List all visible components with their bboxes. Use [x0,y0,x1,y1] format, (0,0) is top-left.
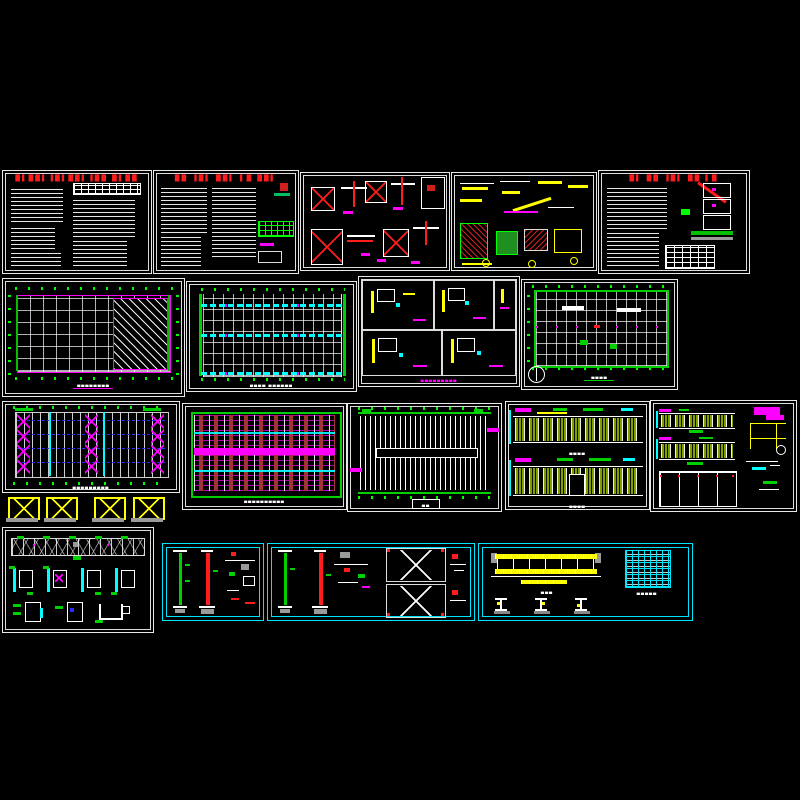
joint-dot-red [441,613,444,616]
caption-underline [73,388,113,389]
section-yellow [577,604,580,607]
detail-green-label [689,430,703,433]
column-figure-red [312,550,330,614]
vertical-brace-detail[interactable] [133,497,165,520]
brace-base [131,518,163,522]
section-yellow [497,602,500,605]
sheet-caption: ▄▄ [413,502,439,507]
x-bracing-magenta [17,414,30,474]
grid-ticks-top [201,288,345,291]
sheet-elevations[interactable]: ▄▄▄▄ ▄▄▄▄ [505,401,650,510]
node-detail [55,600,85,626]
section-yellow [542,602,545,605]
sheet-roof-plan[interactable]: ▄▄▄▄ [521,279,678,390]
detail-green-bar [15,408,33,411]
detail-green-tag [185,580,190,582]
plan-edge-green [168,295,170,371]
detail-yellow-bar [451,339,454,363]
detail-line [347,235,375,237]
crane-beam-bottom-flange [495,569,597,574]
sheet-general-notes-2[interactable]: ██ ▐█▌ ██▌ ▌█ ██▌ [153,170,299,274]
detail-line [746,461,778,462]
detail-box [421,177,445,209]
detail-panel [362,280,434,330]
detail-cyan-bar [47,568,50,592]
column-footing-gray [201,609,214,614]
detail-green-bar [691,231,733,235]
detail-green-label [27,592,33,595]
side-glyphs [450,588,470,612]
detail-red-line [353,181,355,207]
joint-dot-red [660,475,662,477]
detail-green-block [362,409,371,413]
detail-box [258,251,282,263]
frame-elevation [659,471,737,507]
detail-green-tag [185,564,190,566]
detail-line [450,600,466,601]
sheet-title: █▌ ██ ▐█▌ ██ ▌█ [599,175,749,182]
detail-magenta-bar [515,458,531,462]
grid-ticks-bottom [201,378,345,381]
detail-magenta-bar [515,408,531,412]
brace-base [92,518,124,522]
grid-ticks-bottom [15,377,173,380]
grid-line-cyan [509,410,511,444]
eave-line-green [358,412,491,414]
cad-canvas: █▌██▌▐█▌██▌▐██ █▌██ ██ ▐█▌ ██▌ ▌█ ██▌ [0,0,800,800]
sheet-caption: ▄▄▄▄▄▄▄▄ [3,382,184,387]
elevation-top-line [513,416,643,417]
detail-box [19,570,33,588]
detail-red-block [452,590,458,595]
hatched-area [113,298,168,370]
detail-red-line [401,177,403,205]
notes-text-block [73,197,135,237]
detail-cyan-bar [115,568,118,592]
eave-line-green [358,492,491,494]
brace-x [10,499,38,518]
diagram-panel [703,215,731,230]
column-cap [201,550,213,552]
sheet-connection-details[interactable] [451,172,597,271]
detail-yellow-line [750,423,786,424]
diagram-panel [703,183,731,198]
detail-green-arrow [55,606,63,609]
sheet-column-base-details[interactable]: ▄▄▄▄▄▄▄▄▄ [358,276,520,387]
detail-red-dash [231,598,239,600]
detail-red-block [427,185,435,191]
sheet-roof-bracing-plan[interactable]: ▄▄▄▄▄▄▄▄▄ [2,401,180,493]
callout-bubble [570,257,578,265]
section-web [500,600,502,609]
sheet-notes-with-diagram[interactable]: █▌ ██ ▐█▌ ██ ▌█ [598,170,750,274]
section-base-gray [574,611,590,614]
detail-red-line [347,240,373,242]
detail-green-bar [583,408,603,411]
detail-panel [494,280,516,330]
detail-cyan-bar [621,408,633,411]
detail-magenta-blob [766,415,784,420]
detail-magenta-cross [55,574,63,582]
joint-dot-red [716,475,718,477]
brace-x [135,499,163,518]
detail-box [243,576,255,586]
grid-ticks-right [176,293,179,375]
detail-gray-block [340,552,350,558]
detail-green-label [95,592,101,595]
detail-panel [442,330,516,376]
grid-line-cyan [509,460,511,496]
joint-dot-red [441,549,444,552]
truss-node-green [95,536,102,539]
brace-base [44,518,76,522]
section-base-gray [534,611,550,614]
eave-detail-figure [746,459,786,473]
detail-green-arrow [13,612,21,615]
roof-grid [534,290,669,368]
sheet-column-schedule-2[interactable] [267,543,475,621]
joint-dot-red [732,475,734,477]
detail-blue-block [70,608,74,612]
detail-box [122,606,130,614]
brace-x [48,499,76,518]
column-footing-gray [280,609,290,613]
sheet-general-notes-1[interactable]: █▌██▌▐█▌██▌▐██ █▌██ [2,170,152,274]
panel-x-white [388,586,444,616]
gable-elevation-1 [659,409,735,429]
detail-green-block [229,572,235,576]
grid-line-cyan [656,439,658,459]
detail-magenta-dash [362,586,370,588]
mid-details [334,556,380,600]
detail-green-label [43,566,49,569]
brace-x [96,499,124,518]
detail-magenta-dash [413,365,427,367]
strut-line-cyan [103,412,105,476]
elevation-caption-bottom: ▄▄▄▄ [506,503,649,508]
detail-red-block [231,552,236,556]
vertical-brace-detail[interactable] [8,497,40,520]
column-footing-gray [175,609,185,613]
sheet-title: █▌██▌▐█▌██▌▐██ █▌██ [3,175,151,182]
diagram-panel [703,199,731,214]
detail-magenta-dash [413,319,426,321]
elevation-base-line [513,495,643,496]
elevation-base-line [513,442,643,443]
footing-plan-detail [383,229,409,257]
sheet-crane-beam-details[interactable]: ▄▄▄ ▄▄▄▄▄ [478,543,693,621]
detail-cyan-block [465,301,469,305]
sheet-caption: ▄▄▄▄▄▄▄▄▄ [359,377,519,382]
column-shaft-green [179,553,182,605]
section-base-gray [494,611,510,614]
notes-table [73,183,141,195]
detail-yellow-bar [460,199,482,202]
detail-magenta-blob [754,407,780,415]
tie-beam-line [201,334,345,337]
ridge-beam [376,448,478,458]
sheet-roof-sheeting-plan[interactable]: ▄▄ [347,403,502,512]
detail-line [450,564,466,565]
detail-red-dash [245,602,255,604]
notes-text-block [161,236,201,266]
elevation-base-line [659,428,735,429]
detail-yellow-bar [442,290,445,312]
column-cap [314,550,326,552]
x-bracing-magenta [151,414,164,474]
door-opening [569,474,585,496]
elevation-top-line [659,413,735,414]
detail-green-bar [557,458,573,461]
green-table [258,221,294,237]
detail-magenta-dash [361,253,370,256]
detail-magenta-line [504,211,538,213]
sheet-title: ██ ▐█▌ ██▌ ▌█ ██▌ [154,175,298,182]
elevation-columns [661,415,733,427]
sheet-caption: ▄▄▄▄▄▄▄▄▄ [3,484,179,489]
detail-cyan-block [396,303,400,307]
detail-magenta-dash [377,259,386,262]
detail-magenta-bar [659,437,671,440]
elevation-figure-top [513,408,643,448]
detail-line [770,465,780,466]
side-glyphs [450,552,470,578]
detail-gray-bar [691,237,733,240]
node-detail [43,566,69,596]
detail-yellow-bar [403,293,415,295]
grid-ticks-top [358,407,491,410]
detail-box [377,289,395,302]
detail-green-tag [326,574,331,576]
detail-green-label [9,566,15,569]
detail-box [457,338,475,352]
channel-section [99,604,123,620]
truss-node-green [69,536,76,539]
footing-plan-detail [311,187,335,211]
sheet-purlin-plan[interactable]: ▄▄▄▄▄▄▄▄▄▄ [182,403,347,510]
truss-dot-magenta [33,544,35,546]
detail-line [460,183,494,184]
detail-green-bar [274,193,290,196]
purlin-row-cyan [194,470,335,472]
sheet-foundation-plan[interactable]: ▄▄▄▄▄▄▄▄ [2,278,185,397]
detail-yellow-bar [537,412,567,414]
side-details [225,550,259,612]
joint-dot-red [697,475,699,477]
gable-elevation-2 [659,437,735,461]
vertical-brace-detail[interactable] [94,497,126,520]
elevation-base-line [659,459,735,460]
detail-green-block [610,344,617,349]
x-bracing-magenta [85,414,98,474]
detail-line [227,590,239,591]
brace-panel [386,584,446,618]
detail-red-mark [594,325,600,328]
grid-line-cyan [656,411,658,428]
caption-underline [584,380,614,381]
detail-green-bar [679,409,689,411]
detail-cyan-block [477,351,481,355]
node-detail [77,566,103,596]
joint-dot-red [387,613,390,616]
plan-edge-green [16,295,18,371]
column-base-plate [173,606,187,608]
detail-magenta-dash [489,365,503,367]
column-figure-green [173,550,189,612]
detail-box [87,570,101,588]
detail-box [448,288,465,301]
sheet-caption: ▄▄▄▄ [522,374,677,379]
section-arrow-magenta [487,428,499,432]
detail-cyan-block [399,353,403,357]
column-figure-green [278,550,294,612]
detail-yellow-bar [462,187,488,190]
detail-magenta-dash [500,307,509,309]
brace-base [6,518,38,522]
detail-green-tag [290,568,295,570]
ridge-line-dots [536,326,664,328]
panel-x-white [388,550,444,580]
detail-yellow-bar [538,181,562,184]
detail-cyan-bar [623,458,635,461]
detail-red-line [425,221,427,245]
detail-green-bar [553,408,567,411]
detail-box [554,229,582,253]
detail-magenta-dash [712,204,716,207]
section-web [580,600,582,609]
notes-text-block [607,187,667,229]
detail-yellow-line [750,438,786,439]
crane-beam-short [521,580,567,584]
schedule-table [665,245,715,269]
truss-node-green [121,536,128,539]
detail-box [25,602,41,622]
joint-dot-red [678,475,680,477]
brace-panel [386,548,446,582]
detail-hatched-block [460,223,488,259]
detail-green-bar [589,458,611,461]
column-base-plate [312,606,328,608]
column-figure-red [199,550,217,614]
beam-caption: ▄▄▄ [527,589,567,594]
elevation-top-line [513,466,643,467]
column-shaft-red [319,553,323,605]
detail-box [67,602,83,622]
detail-cyan-bar [13,568,16,592]
detail-panel [362,330,442,376]
notes-text-block [11,188,63,222]
callout-bubble [776,445,786,455]
rail-section [535,598,549,614]
detail-line [491,576,601,577]
detail-line [391,183,415,185]
sheet-tie-beam-plan[interactable]: ▄▄▄▄ ▄▄▄▄▄▄ [186,281,357,392]
detail-cyan-bar [40,608,43,618]
detail-line [225,560,255,561]
detail-line [548,207,574,208]
detail-hatched-block [524,229,548,251]
detail-green-block [681,209,690,215]
detail-magenta-dash [473,317,486,319]
elevation-columns [515,418,641,441]
grid-ticks-top [532,285,667,288]
joint-dot-red [387,549,390,552]
callout-bubble [528,260,536,268]
detail-panel [434,280,494,330]
plan-label-bar [562,306,584,310]
truss-plate-gray [73,542,78,547]
detail-green-bar [143,408,161,411]
table-caption: ▄▄▄▄▄ [627,590,667,595]
detail-yellow-line [776,423,777,449]
section-arrow-magenta [350,468,362,472]
column-cap [173,550,187,552]
column-shaft-red [206,553,210,605]
detail-green-block [580,340,588,345]
node-detail [111,566,137,596]
detail-magenta-dash [712,188,716,191]
footing-plan-detail [311,229,343,265]
notes-text-block [212,187,256,257]
truss-dot-magenta [107,544,109,546]
node-detail [9,566,35,596]
detail-green-label [111,592,117,595]
column-base-plate [278,606,292,608]
footing-plan-detail [365,181,387,203]
caption-box: ▄▄ [412,499,440,509]
detail-green-label [687,462,703,465]
elevation-columns [661,444,733,458]
truss-elevation [11,538,145,556]
sheet-column-schedule-1[interactable] [162,543,264,621]
detail-yellow-bar [502,191,520,194]
detail-green-block [73,556,81,560]
detail-line [334,564,368,565]
grid-ticks-left [527,292,530,362]
detail-box [121,570,135,588]
detail-line [338,582,358,583]
strut-line-cyan [49,412,51,476]
elevation-caption-top: ▄▄▄▄ [506,450,649,455]
detail-green-label [763,481,777,484]
detail-green-arrow [13,604,21,607]
sheet-foundation-details[interactable] [300,172,450,271]
detail-red-block [452,554,458,559]
notes-text-block [161,187,207,233]
crane-beam-figure: ▄▄▄ [491,550,603,594]
column-base-plate [199,606,215,608]
sheet-truss-details[interactable] [2,527,154,633]
column-shaft-green [284,553,287,605]
detail-green-block [496,231,518,255]
sheet-elevation-details[interactable] [650,400,797,512]
detail-green-label [95,620,103,623]
detail-magenta-dash [393,207,403,210]
detail-yellow-bar [568,185,588,188]
detail-green-bar [699,437,713,439]
tie-beam-line [201,304,345,307]
detail-cyan-bar [81,568,84,592]
detail-red-block [280,183,288,191]
rail-section [575,598,589,614]
detail-red-block [344,568,350,572]
detail-magenta-dash [411,261,420,264]
detail-yellow-bar [372,339,375,363]
detail-gray-block [241,564,249,570]
vertical-brace-detail[interactable] [46,497,78,520]
detail-magenta-bar [260,243,274,246]
beam-web-stiffeners [497,559,595,569]
